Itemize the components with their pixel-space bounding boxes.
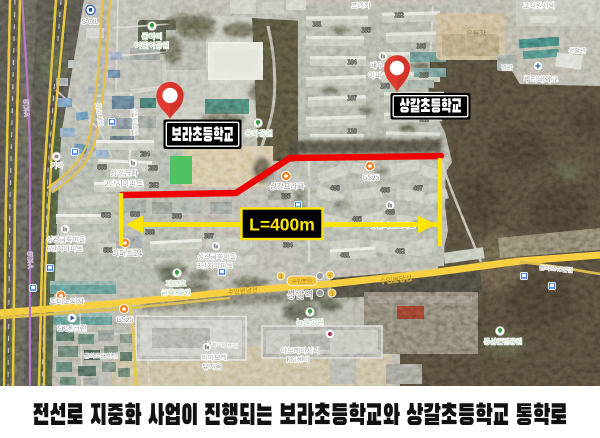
svg-text:L=400m: L=400m (249, 215, 315, 235)
